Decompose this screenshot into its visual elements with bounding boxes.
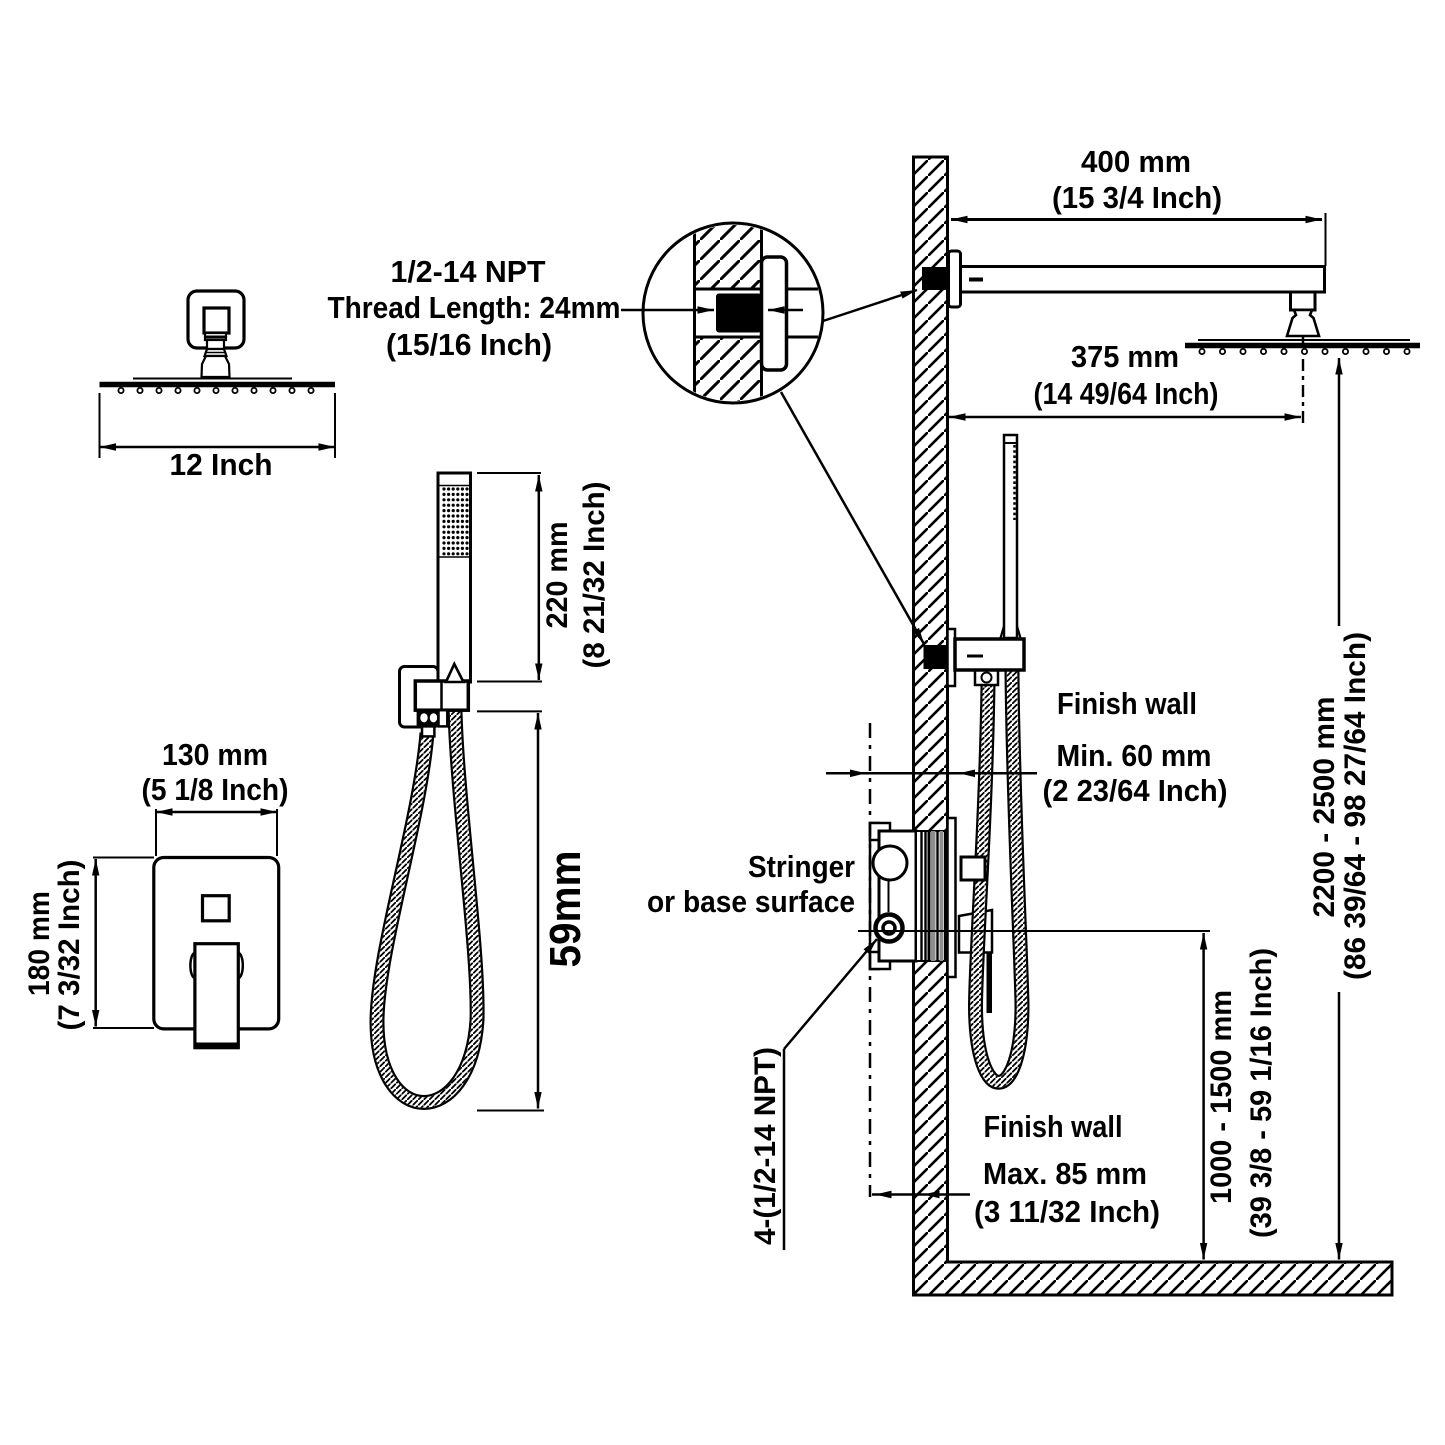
svg-text:(8 21/32 Inch): (8 21/32 Inch) [578,482,611,669]
svg-text:(2 23/64 Inch): (2 23/64 Inch) [1043,773,1228,808]
svg-text:400 mm: 400 mm [1081,144,1191,179]
svg-text:4-(1/2-14 NPT): 4-(1/2-14 NPT) [749,1047,782,1245]
svg-text:Thread Length: 24mm: Thread Length: 24mm [328,290,621,325]
svg-text:220 mm: 220 mm [541,522,574,629]
svg-text:or base surface: or base surface [647,884,855,919]
svg-text:(39 3/8 - 59 1/16 Inch): (39 3/8 - 59 1/16 Inch) [1245,948,1278,1238]
svg-text:12 Inch: 12 Inch [170,447,273,482]
svg-text:(5 1/8 Inch): (5 1/8 Inch) [142,772,289,807]
svg-text:(15 3/4 Inch): (15 3/4 Inch) [1052,180,1222,215]
svg-text:Max. 85 mm: Max. 85 mm [983,1156,1147,1191]
svg-text:(86 39/64 - 98 27/64 Inch): (86 39/64 - 98 27/64 Inch) [1339,632,1372,980]
svg-text:(15/16 Inch): (15/16 Inch) [386,327,552,362]
svg-text:Finish wall: Finish wall [1057,686,1197,721]
svg-text:(3 11/32 Inch): (3 11/32 Inch) [974,1194,1160,1229]
svg-text:(7 3/32 Inch): (7 3/32 Inch) [53,860,86,1031]
svg-text:Finish wall: Finish wall [984,1109,1123,1144]
svg-text:180 mm: 180 mm [23,891,56,996]
svg-text:130 mm: 130 mm [162,737,268,772]
svg-text:375 mm: 375 mm [1071,339,1179,374]
svg-text:2200 - 2500 mm: 2200 - 2500 mm [1308,697,1341,918]
svg-text:59mm: 59mm [541,851,590,968]
svg-text:1000 - 1500 mm: 1000 - 1500 mm [1205,990,1238,1204]
svg-text:1/2-14 NPT: 1/2-14 NPT [391,254,546,289]
svg-text:Min. 60 mm: Min. 60 mm [1057,738,1212,773]
svg-text:(14 49/64 Inch): (14 49/64 Inch) [1034,376,1219,411]
svg-text:Stringer: Stringer [748,849,855,884]
